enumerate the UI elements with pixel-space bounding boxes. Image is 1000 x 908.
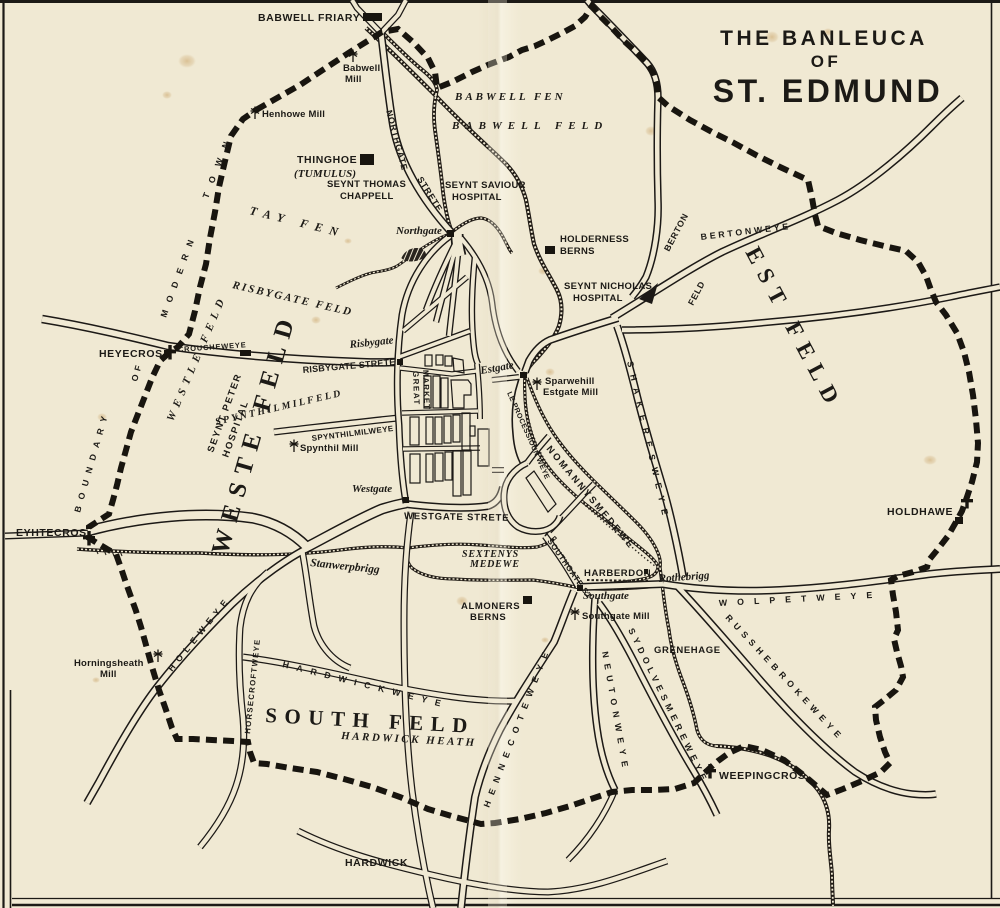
svg-text:THINGHOE: THINGHOE (297, 154, 357, 166)
svg-text:BABWELL FRIARY: BABWELL FRIARY (258, 12, 360, 24)
svg-text:WEEPINGCROS: WEEPINGCROS (719, 770, 806, 782)
svg-text:EYHTECROS: EYHTECROS (16, 527, 87, 539)
svg-text:Sparwehill: Sparwehill (545, 376, 595, 387)
svg-text:BERNS: BERNS (470, 612, 506, 623)
svg-text:Mill: Mill (345, 74, 362, 85)
svg-text:MARKET: MARKET (421, 370, 431, 411)
svg-text:Mill: Mill (100, 669, 117, 680)
svg-text:HARDWICK: HARDWICK (345, 857, 408, 869)
svg-text:GRENEHAGE: GRENEHAGE (654, 645, 721, 656)
svg-text:SEYNT SAVIOUR: SEYNT SAVIOUR (445, 180, 526, 191)
svg-text:THE BANLEUCA: THE BANLEUCA (720, 27, 928, 50)
svg-text:Babwell: Babwell (343, 63, 380, 74)
svg-text:SEYNT NICHOLAS: SEYNT NICHOLAS (564, 281, 652, 292)
svg-text:HOLDHAWE: HOLDHAWE (887, 506, 953, 518)
svg-text:HOSPITAL: HOSPITAL (573, 293, 623, 304)
svg-text:BABWELL FELD: BABWELL FELD (451, 120, 608, 132)
svg-text:HEYECROS: HEYECROS (99, 348, 163, 360)
svg-text:CHAPPELL: CHAPPELL (340, 191, 394, 202)
svg-text:OF: OF (811, 52, 842, 71)
svg-text:GREAT: GREAT (411, 371, 421, 406)
svg-text:BERNS: BERNS (560, 246, 595, 257)
svg-text:Horningsheath: Horningsheath (74, 658, 144, 669)
svg-text:Henhowe Mill: Henhowe Mill (262, 109, 325, 120)
svg-text:Spynthil Mill: Spynthil Mill (300, 443, 359, 454)
svg-text:BABWELL FEN: BABWELL FEN (454, 91, 566, 103)
svg-text:Northgate: Northgate (395, 225, 442, 237)
svg-text:ALMONERS: ALMONERS (461, 601, 520, 612)
svg-text:MEDEWE: MEDEWE (469, 559, 520, 570)
svg-text:HOLDERNESS: HOLDERNESS (560, 234, 629, 245)
svg-text:HARBERDON: HARBERDON (584, 568, 651, 579)
svg-text:SEYNT THOMAS: SEYNT THOMAS (327, 179, 406, 190)
svg-text:Estgate Mill: Estgate Mill (543, 387, 598, 398)
svg-text:ST. EDMUND: ST. EDMUND (713, 73, 944, 109)
svg-text:HOSPITAL: HOSPITAL (452, 192, 502, 203)
svg-text:Southgate Mill: Southgate Mill (582, 611, 650, 622)
svg-text:WESTGATE STRETE: WESTGATE STRETE (404, 511, 509, 524)
svg-text:Westgate: Westgate (352, 483, 392, 495)
